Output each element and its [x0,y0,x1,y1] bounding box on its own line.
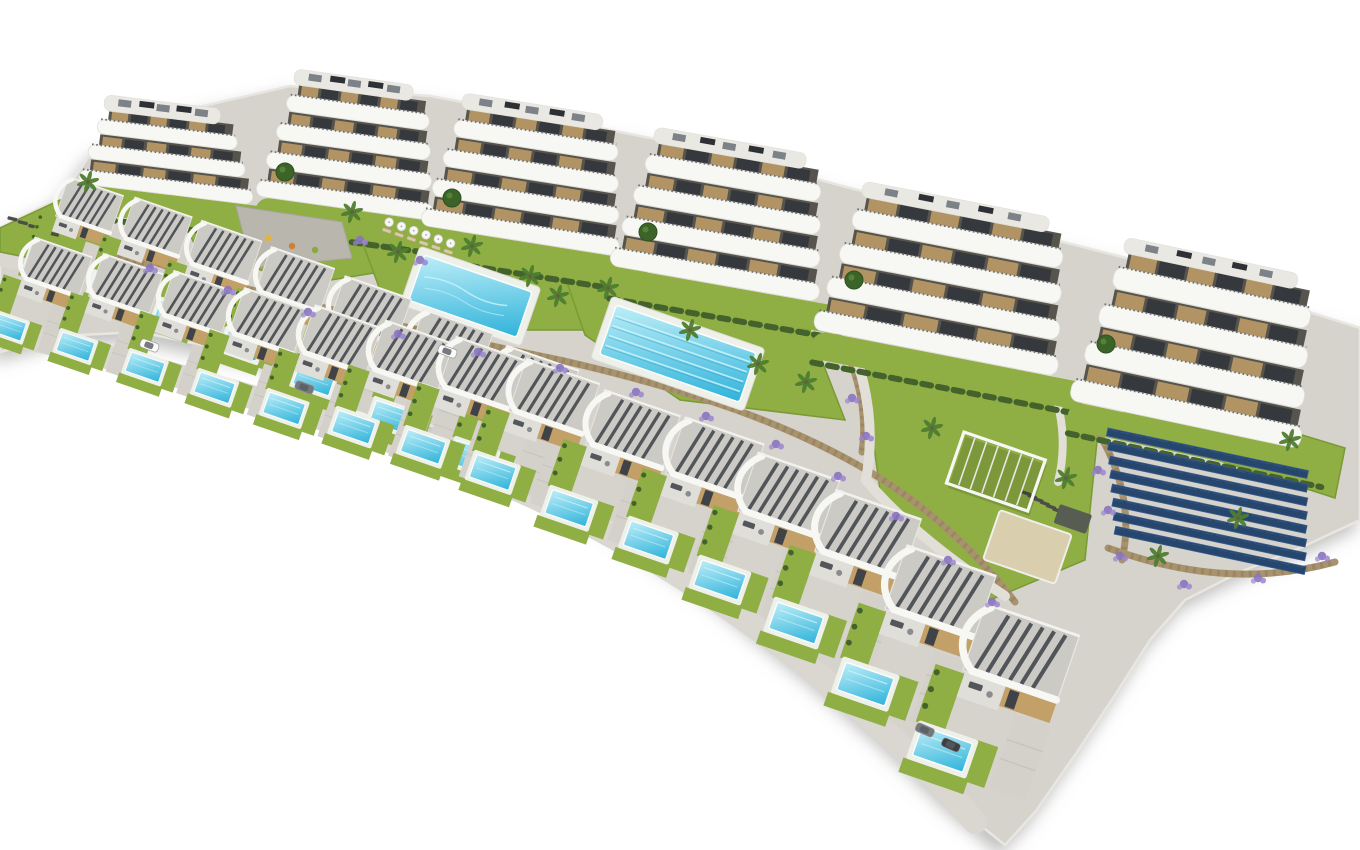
purple-shrub [553,368,558,373]
palm-trunk [804,380,807,383]
palm-trunk [1236,516,1239,519]
purple-shrub [152,268,158,274]
purple-shrub [422,260,428,266]
purple-shrub [413,260,418,265]
purple-shrub [1324,556,1330,562]
purple-shrub [1100,470,1106,476]
purple-shrub [353,240,358,245]
tree-highlight [643,227,649,233]
purple-shrub [769,444,774,449]
round-tree [276,163,294,181]
purple-shrub [778,444,784,450]
purple-shrub [699,416,704,421]
purple-shrub [831,476,836,481]
development-render-svg [0,0,1360,850]
purple-shrub [1091,470,1096,475]
palm-trunk [1064,476,1067,479]
purple-shrub [1315,556,1320,561]
palm-trunk [556,294,559,297]
tree-highlight [849,275,855,281]
purple-shrub [143,268,148,273]
palm-trunk [1156,554,1159,557]
purple-shrub [1110,510,1116,516]
purple-shrub [840,476,846,482]
tree-highlight [447,193,453,199]
purple-shrub [1113,556,1118,561]
play-equipment [312,247,318,253]
palm-trunk [688,328,691,331]
purple-shrub [854,398,860,404]
round-tree [639,223,657,241]
purple-shrub [1101,510,1106,515]
purple-shrub [391,334,396,339]
purple-shrub [708,416,714,422]
palm-trunk [930,426,933,429]
purple-shrub [941,560,946,565]
purple-shrub [845,398,850,403]
palm-trunk [470,244,473,247]
palm-trunk [86,180,89,183]
purple-shrub [629,392,634,397]
palm-trunk [606,286,609,289]
purple-shrub [859,436,864,441]
development-aerial-render [0,0,1360,850]
purple-shrub [898,516,904,522]
purple-shrub [994,602,1000,608]
palm-trunk [528,274,531,277]
palm-trunk [756,362,759,365]
palm-trunk [396,250,399,253]
play-equipment [265,235,271,241]
purple-shrub [1260,578,1266,584]
purple-shrub [562,368,568,374]
purple-shrub [400,334,406,340]
purple-shrub [221,290,226,295]
purple-shrub [889,516,894,521]
round-tree [845,271,863,289]
purple-shrub [1177,584,1182,589]
purple-shrub [1122,556,1128,562]
tree-highlight [280,167,286,173]
purple-shrub [1251,578,1256,583]
round-tree [1097,335,1115,353]
tree-highlight [1101,339,1107,345]
purple-shrub [985,602,990,607]
purple-shrub [310,312,316,318]
purple-shrub [1186,584,1192,590]
palm-trunk [1288,438,1291,441]
round-tree [443,189,461,207]
purple-shrub [471,352,476,357]
palm-trunk [350,210,353,213]
purple-shrub [301,312,306,317]
purple-shrub [362,240,368,246]
purple-shrub [868,436,874,442]
play-equipment [289,243,295,249]
purple-shrub [480,352,486,358]
purple-shrub [638,392,644,398]
purple-shrub [230,290,236,296]
purple-shrub [950,560,956,566]
